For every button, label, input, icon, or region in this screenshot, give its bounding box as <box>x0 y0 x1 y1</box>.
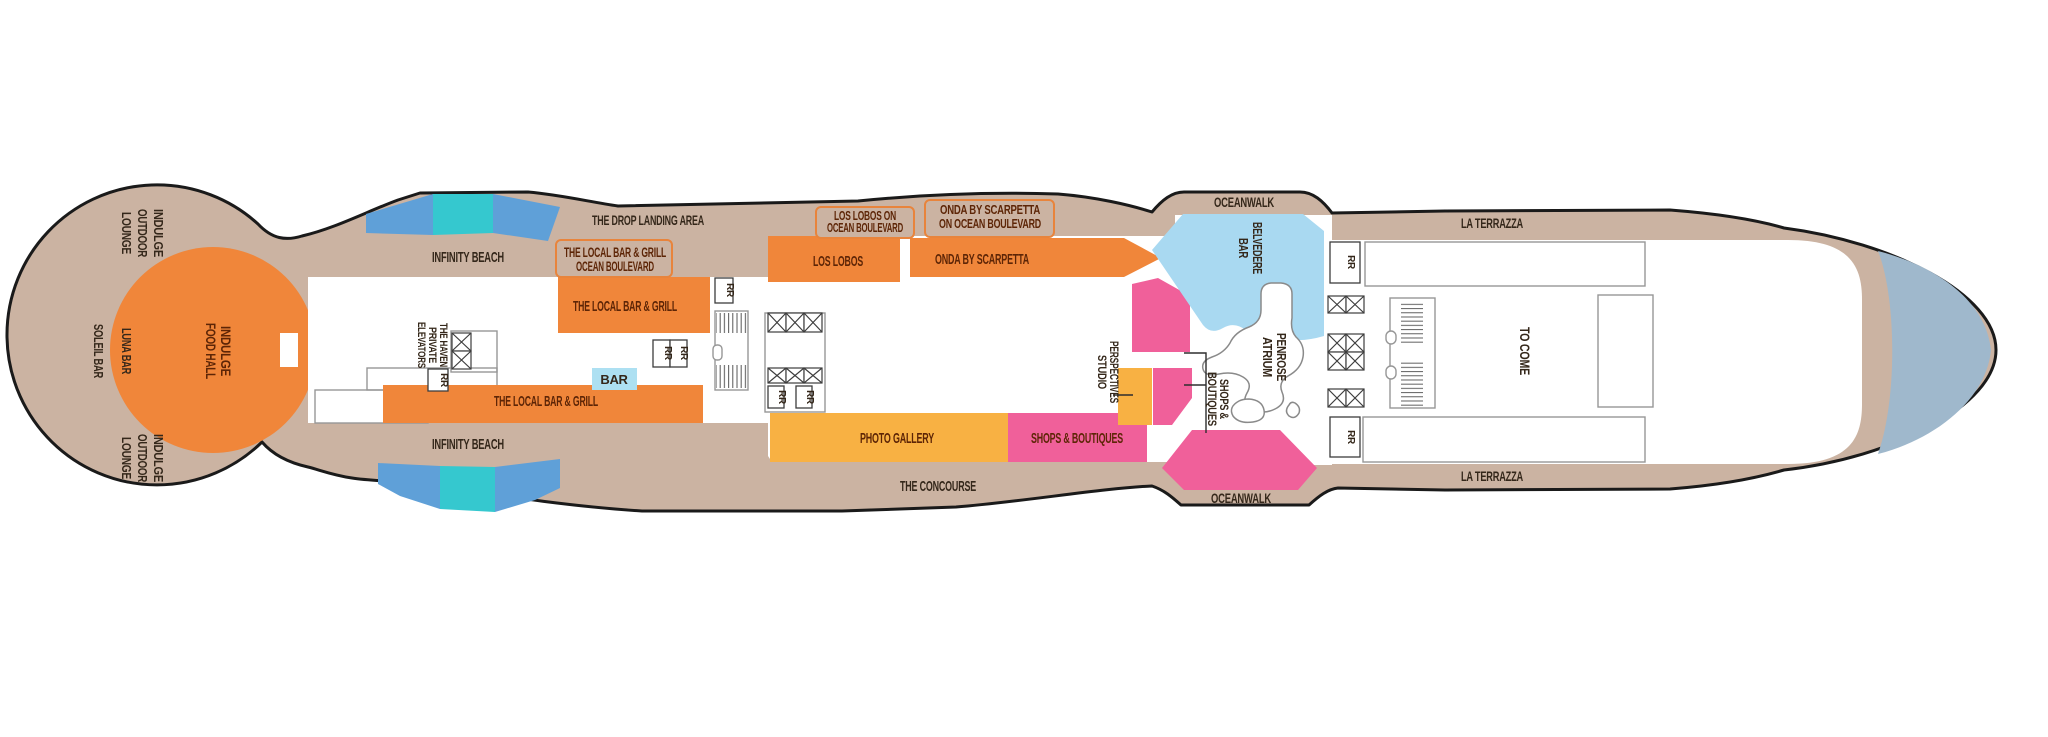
label-indulge-outdoor-lounge-bottom-3: LOUNGE <box>119 437 134 479</box>
label-rr-center-left: RR <box>776 390 787 405</box>
bow-tip-area <box>1878 251 1991 454</box>
label-la-terrazza-bottom: LA TERRAZZA <box>1461 468 1523 484</box>
label-local-bar-grill-top: THE LOCAL BAR & GRILL <box>573 298 677 315</box>
label-bar: BAR <box>600 372 628 387</box>
label-belvedere-bar-2: BAR <box>1236 238 1251 259</box>
label-the-concourse: THE CONCOURSE <box>900 478 976 495</box>
deck-plan-figure: INDULGE OUTDOOR LOUNGE SOLEIL BAR LUNA B… <box>0 0 2048 737</box>
label-luna-bar: LUNA BAR <box>119 328 134 375</box>
pool-bottom-right <box>495 459 560 512</box>
pool-bottom-left <box>378 463 440 509</box>
label-soleil-bar: SOLEIL BAR <box>91 324 106 379</box>
label-onda-by-scarpetta: ONDA BY SCARPETTA <box>935 251 1029 268</box>
pool-top-center <box>433 194 493 235</box>
label-infinity-beach-bottom: INFINITY BEACH <box>432 436 504 453</box>
label-indulge-outdoor-lounge-bottom-2: OUTDOOR <box>135 434 150 483</box>
interior-notch <box>280 333 298 367</box>
label-onda-blvd-1: ONDA BY SCARPETTA <box>940 203 1040 217</box>
label-perspectives-studio-2: STUDIO <box>1095 355 1109 389</box>
label-shops-boutiques-room: SHOPS & BOUTIQUES <box>1031 430 1123 447</box>
label-los-lobos-blvd-2: OCEAN BOULEVARD <box>827 221 903 235</box>
elevator-bank-forward-lower-icon <box>1328 389 1364 407</box>
label-photo-gallery: PHOTO GALLERY <box>860 430 934 447</box>
label-rr-forward-top: RR <box>1345 255 1356 270</box>
interior-forward <box>1332 240 1862 464</box>
label-shops-boutiques-callout-2: BOUTIQUES <box>1205 372 1219 426</box>
label-drop-landing-area: THE DROP LANDING AREA <box>592 212 704 228</box>
label-rr-haven: RR <box>438 373 449 388</box>
penrose-atrium-shape-small <box>1231 399 1264 422</box>
haven-elevator-icon <box>452 333 471 369</box>
label-rr-midship-pair-right: RR <box>678 346 689 361</box>
label-indulge-food-hall-2: FOOD HALL <box>203 323 218 379</box>
label-rr-center-right: RR <box>804 390 815 405</box>
label-indulge-outdoor-lounge-top-3: LOUNGE <box>119 212 134 254</box>
label-local-ocean-blvd-1: THE LOCAL BAR & GRILL <box>564 245 666 260</box>
label-rr-midship-top: RR <box>724 283 735 298</box>
label-indulge-outdoor-lounge-top-1: INDULGE <box>151 209 166 258</box>
label-onda-blvd-2: ON OCEAN BOULEVARD <box>939 217 1041 231</box>
label-los-lobos: LOS LOBOS <box>813 253 863 270</box>
label-rr-forward-bottom: RR <box>1345 430 1356 445</box>
label-belvedere-bar-1: BELVEDERE <box>1250 222 1265 274</box>
elevator-bank-forward-middle-icon <box>1328 334 1364 370</box>
label-indulge-outdoor-lounge-bottom-1: INDULGE <box>151 434 166 483</box>
label-penrose-atrium-1: PENROSE <box>1274 333 1289 381</box>
label-infinity-beach-top: INFINITY BEACH <box>432 249 504 266</box>
room-perspectives-studio <box>1118 368 1152 425</box>
label-local-bar-grill-bottom: THE LOCAL BAR & GRILL <box>494 393 598 410</box>
elevator-bank-center-bottom-icon <box>768 368 822 383</box>
deck-plan-canvas: INDULGE OUTDOOR LOUNGE SOLEIL BAR LUNA B… <box>0 0 2048 737</box>
penrose-atrium-shape-tiny <box>1287 402 1300 417</box>
label-local-ocean-blvd-2: OCEAN BOULEVARD <box>576 259 654 274</box>
label-oceanwalk-top: OCEANWALK <box>1214 194 1274 210</box>
label-indulge-outdoor-lounge-top-2: OUTDOOR <box>135 209 150 258</box>
label-to-come: TO COME <box>1517 327 1533 375</box>
label-rr-midship-pair-left: RR <box>662 346 673 361</box>
elevator-bank-center-top-icon <box>768 313 822 332</box>
elevator-bank-forward-upper-icon <box>1328 296 1364 313</box>
label-oceanwalk-bottom: OCEANWALK <box>1211 490 1271 506</box>
label-penrose-atrium-2: ATRIUM <box>1260 337 1275 377</box>
label-la-terrazza-top: LA TERRAZZA <box>1461 215 1523 231</box>
pool-bottom-center <box>440 466 495 512</box>
label-indulge-food-hall-1: INDULGE <box>218 326 233 376</box>
label-haven-elevators-3: ELEVATORS <box>415 322 427 368</box>
